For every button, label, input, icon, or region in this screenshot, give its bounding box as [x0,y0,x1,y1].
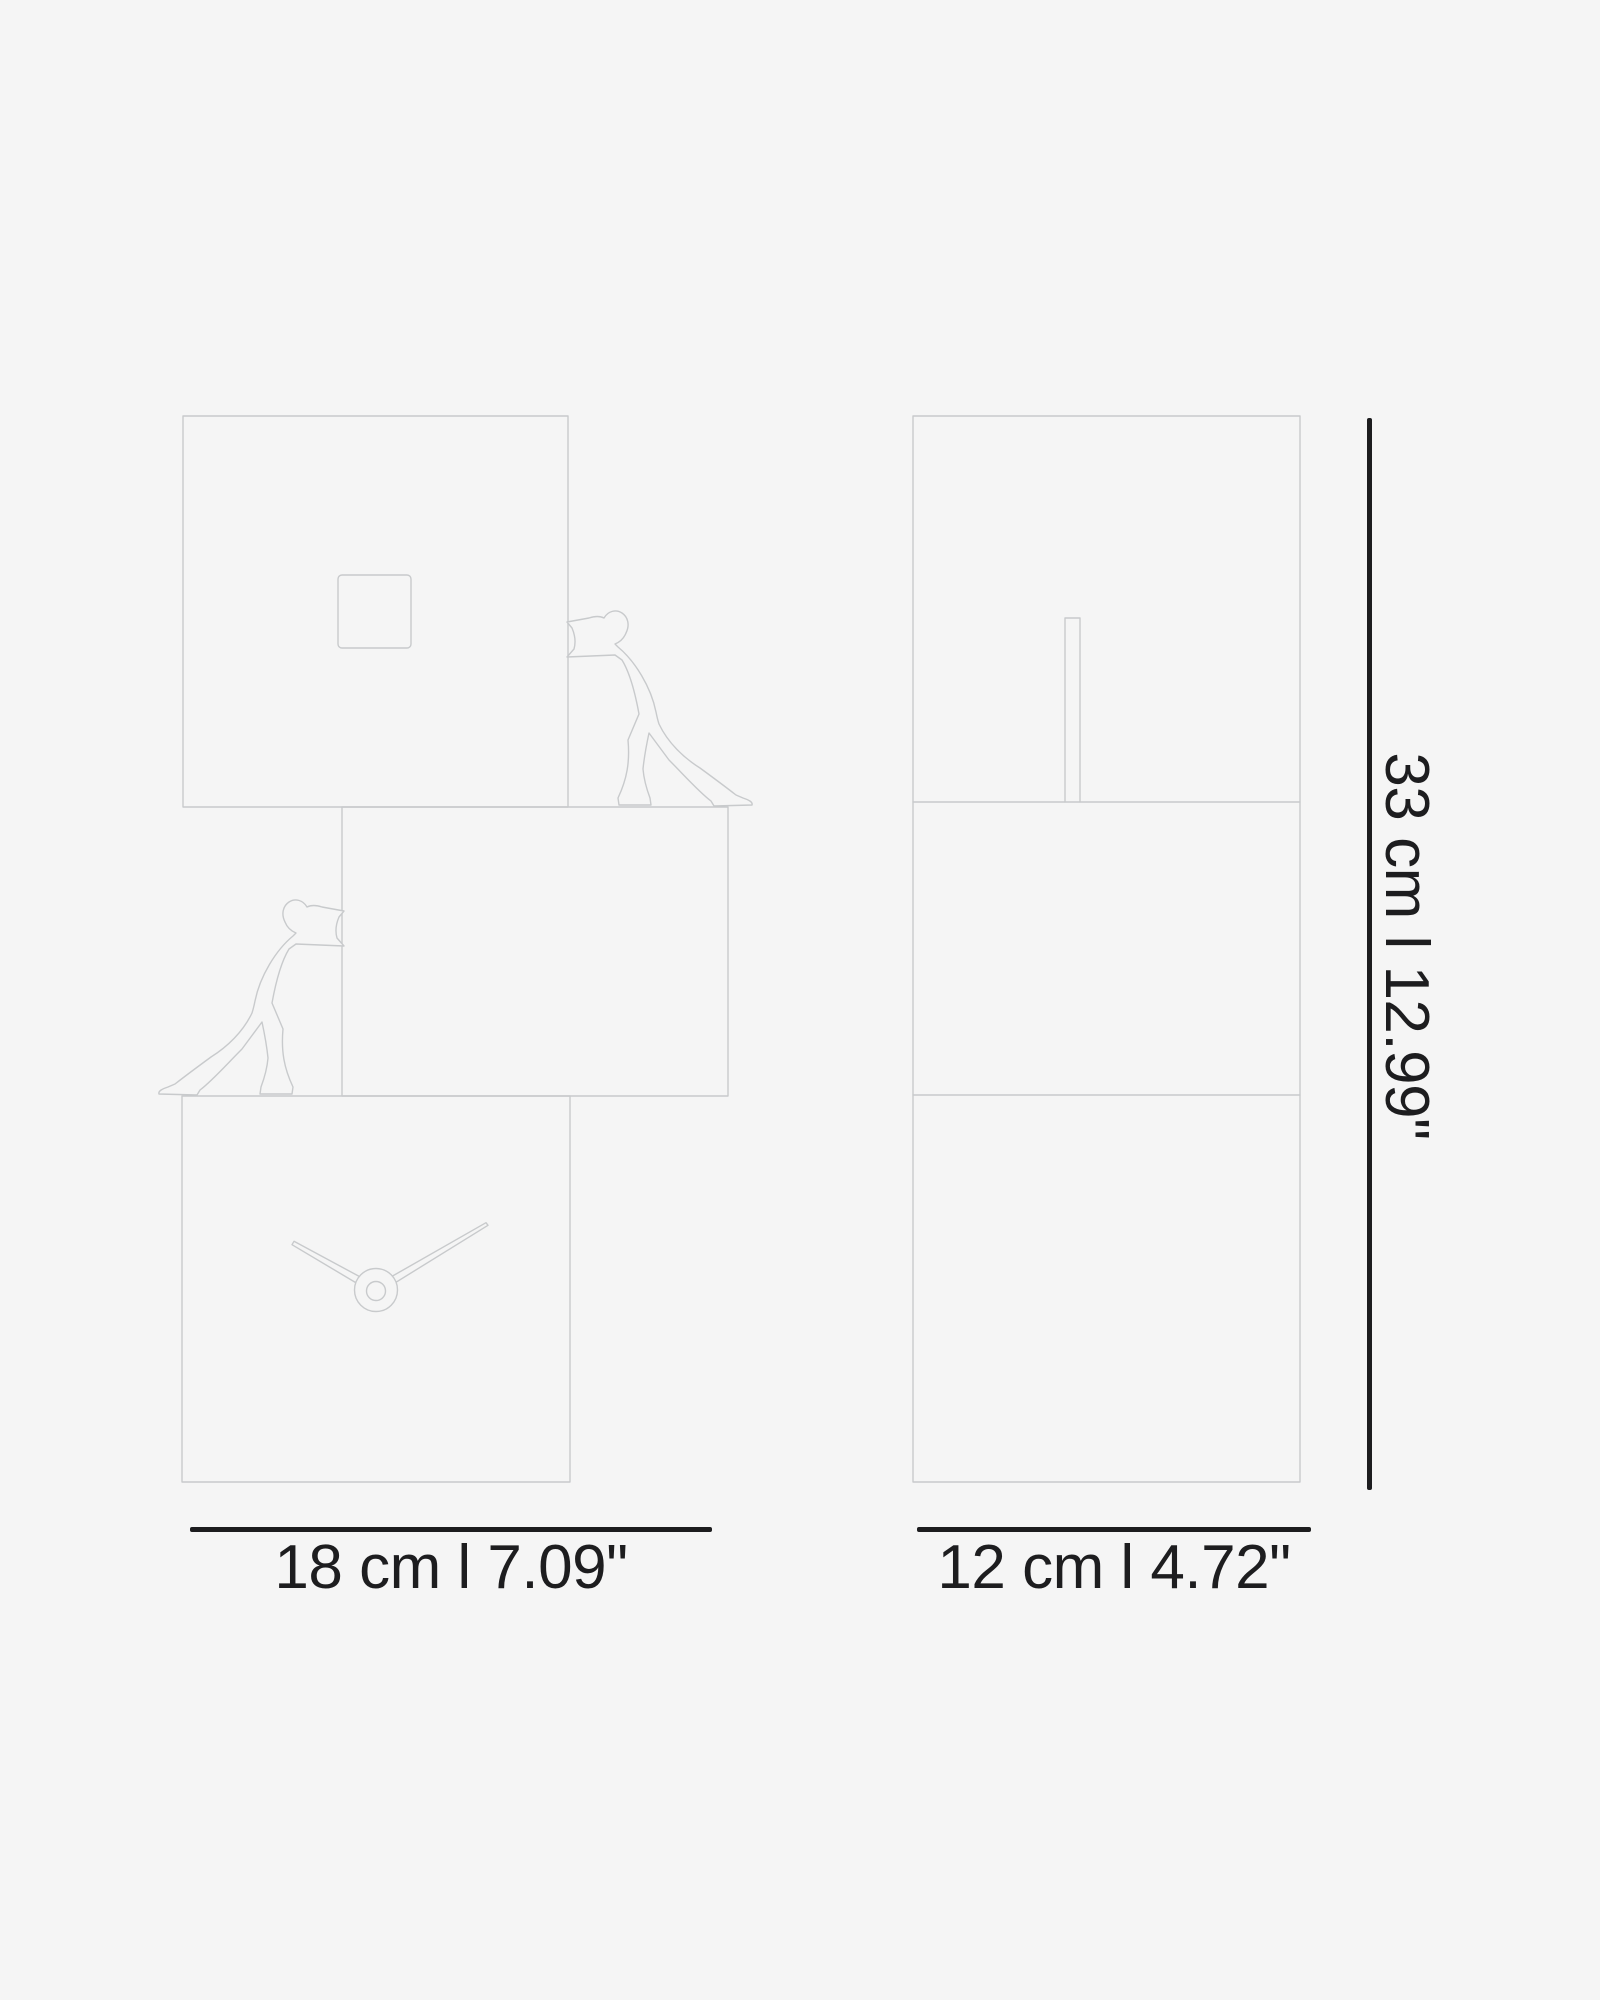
height-dimension-label: 33 cm l 12.99" [1375,752,1437,1139]
front-view [159,416,752,1482]
dimension-diagram: 18 cm l 7.09" 12 cm l 4.72" 33 cm l 12.9… [0,0,1600,2000]
front-top-cube [183,416,568,807]
side-width-dimension-line [917,1527,1311,1532]
front-middle-cube [342,807,728,1096]
clock-face [292,1223,488,1312]
pushing-person-figure-right [567,611,752,806]
side-width-dimension-label: 12 cm l 4.72" [937,1537,1290,1599]
pendulum-slot [1065,618,1080,802]
side-view-outline [913,416,1300,1482]
side-view [913,416,1300,1482]
pushing-person-figure-left [159,900,344,1095]
front-width-dimension-label: 18 cm l 7.09" [274,1537,627,1599]
front-width-dimension-line [190,1527,712,1532]
clock-hub-inner [367,1282,386,1301]
cuckoo-window [338,575,411,648]
line-art-drawing [0,0,1600,2000]
